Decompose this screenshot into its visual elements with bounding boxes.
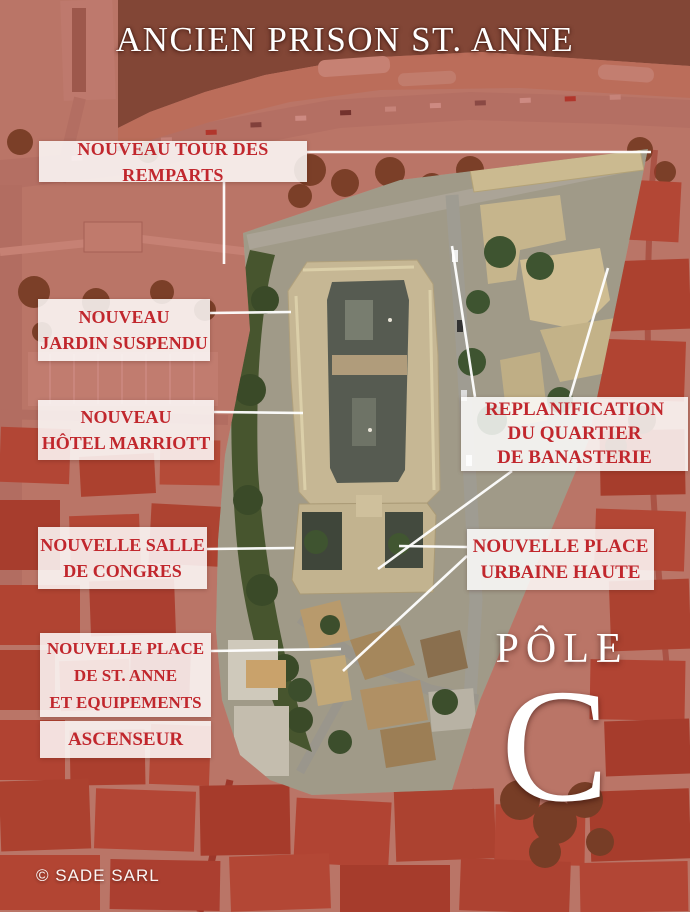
label-jardin-suspendu: NOUVEAU JARDIN SUSPENDU: [38, 299, 210, 361]
label-line: NOUVEAU TOUR DES REMPARTS: [39, 136, 307, 188]
label-line: HÔTEL MARRIOTT: [38, 430, 214, 456]
label-place-urbaine-haute: NOUVELLE PLACE URBAINE HAUTE: [467, 529, 654, 590]
label-line: DE ST. ANNE: [40, 662, 211, 689]
label-place-st-anne: NOUVELLE PLACE DE ST. ANNE ET EQUIPEMENT…: [40, 633, 211, 717]
label-line: NOUVELLE PLACE: [40, 635, 211, 662]
label-line: URBAINE HAUTE: [467, 560, 654, 586]
label-line: NOUVELLE SALLE: [38, 532, 207, 558]
poster: ANCIEN PRISON ST. ANNE NOUVEAU TOUR DES …: [0, 0, 690, 912]
label-line: DE BANASTERIE: [461, 446, 688, 470]
label-line: NOUVEAU: [38, 304, 210, 330]
copyright-credit: © SADE SARL: [36, 866, 160, 886]
page-title: ANCIEN PRISON ST. ANNE: [0, 20, 690, 60]
label-line: NOUVELLE PLACE: [467, 534, 654, 560]
label-line: ASCENSEUR: [40, 727, 211, 753]
label-line: DU QUARTIER: [461, 422, 688, 446]
label-line: DE CONGRES: [38, 558, 207, 584]
label-tour-des-remparts: NOUVEAU TOUR DES REMPARTS: [39, 141, 307, 182]
label-hotel-marriott: NOUVEAU HÔTEL MARRIOTT: [38, 400, 214, 460]
label-replanification: REPLANIFICATION DU QUARTIER DE BANASTERI…: [461, 397, 688, 471]
label-salle-de-congres: NOUVELLE SALLE DE CONGRES: [38, 527, 207, 589]
label-line: NOUVEAU: [38, 404, 214, 430]
label-line: ET EQUIPEMENTS: [40, 689, 211, 716]
label-line: REPLANIFICATION: [461, 398, 688, 422]
label-line: JARDIN SUSPENDU: [38, 330, 210, 356]
pole-letter: C: [463, 672, 647, 821]
pole-c-label: PÔLE C: [477, 628, 647, 821]
label-ascenseur: ASCENSEUR: [40, 721, 211, 758]
